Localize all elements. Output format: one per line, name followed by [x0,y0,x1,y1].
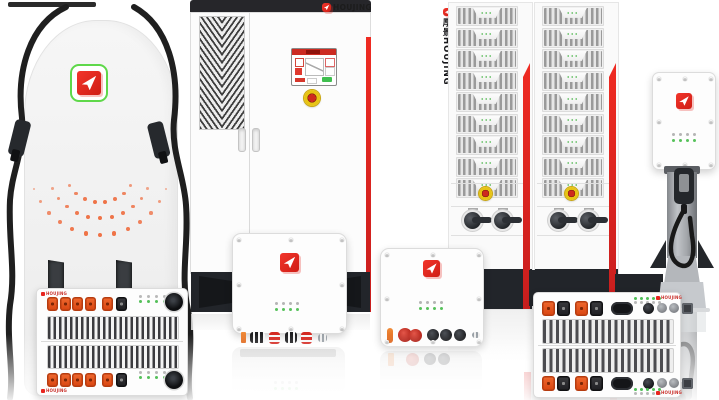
led-indicator-icon [679,133,682,136]
panel-line [451,235,523,236]
module-led-strip [481,162,492,164]
black-round-connector-icon [440,329,452,341]
vent-grille-icon [542,319,674,344]
screen-tile-red [295,58,304,67]
power-module-stack [456,6,518,200]
led-indicator-icon [295,381,298,384]
vent-grille-icon [47,316,179,340]
vent-grille-icon [542,348,674,373]
vent-grille-icon [47,345,179,369]
led-indicator-icon [679,139,682,142]
screw-icon [431,340,435,344]
power-module-slot [456,135,518,155]
unit-divider [41,341,183,342]
screen-bar-red [295,78,305,82]
orange-tab-connector-icon [241,332,246,343]
houjing-mini-logo-icon [656,296,660,300]
screen-chart-area [305,58,324,76]
houjing-logo-icon [322,3,331,12]
orange-power-connector-icon [85,297,96,311]
screw-icon [385,297,389,301]
emergency-stop-button [479,187,492,200]
status-led-rows [275,302,299,314]
houjing-mini-logo: HOUJING [41,388,67,393]
gray-pin-connector-icon [318,334,327,342]
houjing-logo: HOUJING [322,3,372,12]
black-signal-connector-icon [557,376,570,391]
screw-icon [237,238,241,242]
oval-fan-icon [611,302,633,315]
module-led-strip [481,12,492,14]
gray-pin-connector-icon [472,332,480,338]
screen-header-tab [306,50,320,54]
module-led-strip [481,76,492,78]
ventilation-grille-icon [199,16,245,130]
module-led-strip [567,98,578,100]
stripe-reflection [524,372,531,400]
connector-row-top [47,296,127,311]
houjing-mini-logo-text: HOUJING [46,388,67,393]
module-led-strip [567,76,578,78]
houjing-mini-logo-text: HOUJING [661,390,682,395]
screw-icon [657,120,661,124]
led-indicator-icon [282,308,285,311]
led-indicator-icon [275,302,278,305]
orange-power-connector-icon [60,373,71,387]
module-led-strip [481,119,492,121]
led-indicator-icon [139,300,142,303]
led-row [672,133,696,136]
module-a-reflection [232,347,345,395]
orange-power-connector-icon [102,373,113,387]
ac-switch-handle [502,217,522,223]
power-module-slot [542,114,604,134]
power-module-stack [542,6,604,200]
led-indicator-icon [686,139,689,142]
fan-icon [165,293,183,311]
square-connector-icon [682,378,693,389]
panel-line [537,183,609,184]
module-led-strip [567,184,578,186]
led-indicator-icon [155,376,158,379]
led-indicator-icon [296,308,299,311]
module-led-strip [567,12,578,14]
led-indicator-icon [433,301,436,304]
led-indicator-icon [295,387,298,390]
black-signal-connector-icon [557,301,570,316]
screen-tile-right1 [325,58,335,67]
power-module-slot [456,71,518,91]
module-led-strip [481,98,492,100]
power-module-slot [456,157,518,177]
charging-rack-tower-right [534,2,619,310]
gun-grip [679,174,689,192]
led-indicator-icon [646,388,649,391]
led-indicator-icon [296,302,299,305]
wall-power-module-b [380,248,484,347]
screw-icon [431,253,435,257]
dc-switch-handle [472,217,492,223]
led-indicator-icon [672,133,675,136]
led-indicator-icon [155,300,158,303]
connector-row-bottom [47,372,127,387]
red-round-connector-icon [409,329,422,342]
oval-fan-icon [611,377,633,390]
wall-power-module-a [232,233,347,334]
led-indicator-icon [275,308,278,311]
module-led-strip [481,55,492,57]
switch-label-tick [498,208,508,210]
switch-label-tick [554,208,564,210]
door-handle-left [238,128,246,152]
screen-button-green [322,77,332,82]
grille-right-half [222,17,244,129]
module-b-reflection [380,351,482,395]
led-indicator-icon [640,388,643,391]
panel-line [537,235,609,236]
orange-power-connector-icon [47,373,58,387]
panel-line [451,183,523,184]
led-indicator-icon [282,302,285,305]
orange-power-connector-icon [60,297,71,311]
round-gray-connector-icon [669,303,679,313]
pin-block-connector-icon [285,332,297,343]
orange-power-connector-icon [575,376,588,391]
round-gray-connector-icon [669,378,679,388]
screw-icon [709,77,713,81]
power-module-slot [542,135,604,155]
pin-block-connector-icon [250,332,265,343]
cable-loop [671,210,693,266]
red-fin-connector-icon [301,332,312,344]
status-led-rows [419,301,443,313]
module-led-strip [567,141,578,143]
module-led-strip [481,184,492,186]
power-module-slot [542,6,604,26]
screw-icon [477,253,481,257]
led-row [419,307,443,310]
led-row [275,302,299,305]
screw-icon [289,327,293,331]
black-signal-connector-icon [116,373,127,387]
houjing-product-lineup: HOUJING 厚景HOUJING [0,0,719,400]
rack-module-unit-left: HOUJING HOUJING [36,288,188,396]
module-led-strip [481,141,492,143]
led-group-row [139,376,166,379]
connector-ghost [438,353,450,365]
led-row [274,387,298,390]
round-gray-connector-icon [657,303,667,313]
screw-icon [683,77,687,81]
switch-label-tick [468,208,478,210]
connector-ghost [406,353,419,366]
dc-switch-handle [558,217,578,223]
orange-power-connector-icon [72,373,83,387]
led-indicator-icon [652,388,655,391]
hmi-screen [291,48,337,86]
panel-line [537,206,609,207]
screw-icon [237,283,241,287]
black-signal-connector-icon [590,301,603,316]
connector-row-top [542,300,693,316]
fan-icon [165,371,183,389]
tower-red-stripe [609,63,616,309]
screw-icon [340,238,344,242]
orange-power-connector-icon [575,301,588,316]
led-indicator-icon [419,307,422,310]
power-module-slot [542,28,604,48]
switch-label-tick [584,208,594,210]
led-indicator-icon [288,387,291,390]
screw-icon [385,253,389,257]
module-led-strip [567,119,578,121]
screen-bar-gray [307,78,317,84]
round-cap-connector-icon [643,303,654,314]
screw-icon [477,297,481,301]
module-led-strip [567,33,578,35]
unit-divider [538,345,676,346]
ac-switch-handle [588,217,608,223]
power-module-slot [456,49,518,69]
houjing-logo-icon [423,260,440,277]
led-indicator-icon [147,300,150,303]
led-indicator-icon [634,388,637,391]
led-indicator-icon [147,376,150,379]
charging-gun-left-icon [6,119,32,164]
orange-power-connector-icon [85,373,96,387]
screw-icon [657,77,661,81]
module-led-strip [567,55,578,57]
grille-left-half [200,17,222,129]
cabinet-red-stripe [366,37,371,312]
led-ghost [274,381,298,393]
emergency-stop-button [565,187,578,200]
red-fin-connector-icon [269,332,280,344]
led-indicator-icon [426,307,429,310]
black-signal-connector-icon [590,376,603,391]
houjing-mini-logo-icon [41,389,45,393]
screen-tile-red2 [295,68,302,75]
bottom-connector-strip [241,330,327,345]
led-indicator-icon [693,139,696,142]
houjing-mini-logo: HOUJING [656,390,682,395]
power-module-slot [456,28,518,48]
houjing-mini-logo-icon [656,391,660,395]
orange-power-connector-icon [72,297,83,311]
power-module-slot [542,71,604,91]
led-indicator-icon [426,301,429,304]
screen-tile-right2 [325,67,335,76]
power-module-slot [456,92,518,112]
led-indicator-icon [686,133,689,136]
rack-module-unit-right: HOUJING HOUJING [533,292,681,398]
screw-icon [477,340,481,344]
black-round-connector-icon [454,329,466,341]
led-indicator-icon [693,133,696,136]
led-group-row [139,300,166,303]
led-indicator-icon [139,376,142,379]
led-indicator-icon [289,308,292,311]
orange-power-connector-icon [102,297,113,311]
power-module-slot [542,92,604,112]
led-indicator-icon [274,387,277,390]
led-indicator-icon [288,381,291,384]
houjing-logo-icon [280,253,299,272]
round-cap-connector-icon [643,378,654,389]
led-indicator-icon [440,301,443,304]
led-row [419,301,443,304]
power-module-slot [456,114,518,134]
panel-line [451,206,523,207]
connector-row-bottom [542,375,693,391]
power-module-slot [542,157,604,177]
emergency-stop-button [304,90,320,106]
led-indicator-icon [433,307,436,310]
led-indicator-icon [281,381,284,384]
power-module-slot [542,49,604,69]
houjing-mini-logo-icon [41,292,45,296]
connector-ghost [388,353,394,366]
screw-icon [340,327,344,331]
houjing-logo-icon [676,93,692,109]
screw-icon [289,238,293,242]
status-led-rows [672,133,696,145]
orange-power-connector-icon [542,376,555,391]
round-gray-connector-icon [657,378,667,388]
led-indicator-icon [281,387,284,390]
orange-power-connector-icon [47,297,58,311]
door-handle-right [252,128,260,152]
led-indicator-icon [419,301,422,304]
orange-power-connector-icon [542,301,555,316]
module-led-strip [481,33,492,35]
screw-icon [237,327,241,331]
connector-ghost [240,349,336,357]
black-signal-connector-icon [116,297,127,311]
screw-icon [385,340,389,344]
charging-gun-right-icon [147,121,173,166]
led-indicator-icon [274,381,277,384]
led-indicator-icon [440,307,443,310]
connector-ghost [424,353,436,365]
square-connector-icon [682,303,693,314]
led-indicator-icon [289,302,292,305]
led-indicator-icon [672,139,675,142]
houjing-logo-text: HOUJING [333,3,372,12]
wall-mounted-charger-box [652,72,716,170]
led-row [274,381,298,384]
led-row [275,308,299,311]
module-led-strip [567,162,578,164]
power-module-slot [456,6,518,26]
screw-icon [709,120,713,124]
screw-icon [340,283,344,287]
led-row [672,139,696,142]
